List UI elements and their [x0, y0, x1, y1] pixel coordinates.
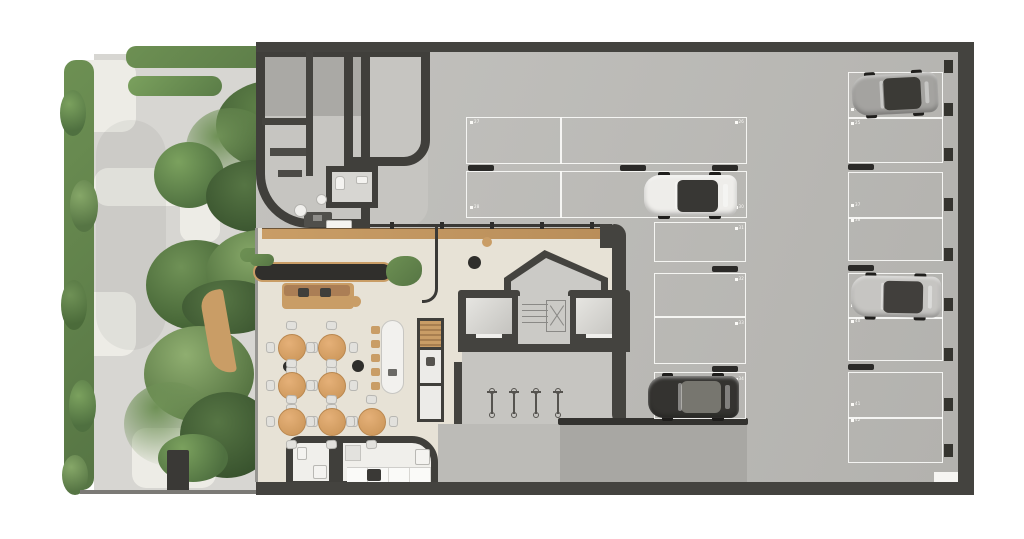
building-top-wall — [256, 42, 970, 52]
building-right-wall — [958, 42, 974, 492]
island-stool — [371, 368, 380, 376]
island-stool — [371, 354, 380, 362]
island-stool — [371, 382, 380, 390]
building-bottom-wall — [256, 482, 974, 495]
island-stool — [371, 326, 380, 334]
island-stool — [371, 340, 380, 348]
floor-plan-image: 27262830313233342425373839404142 — [0, 0, 1024, 539]
